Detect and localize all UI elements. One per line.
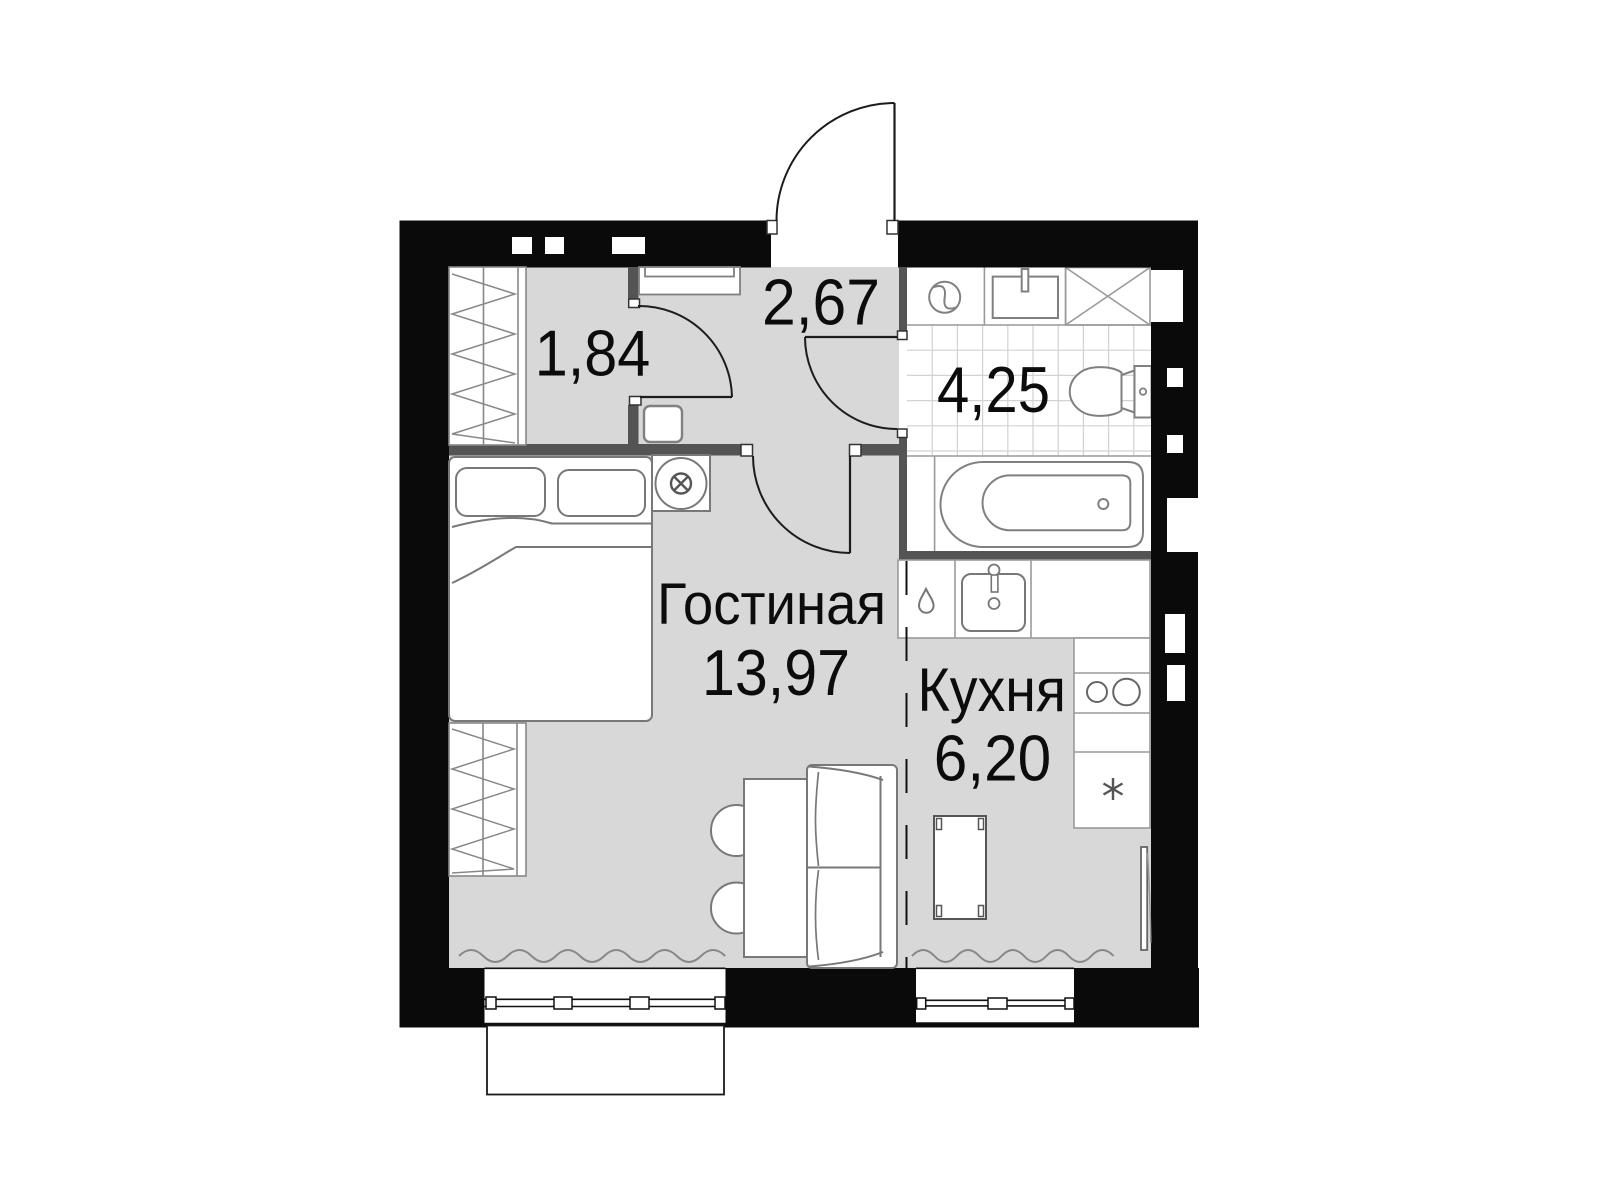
svg-text:Кухня: Кухня (917, 656, 1066, 724)
svg-text:13,97: 13,97 (702, 636, 850, 709)
svg-text:2,67: 2,67 (762, 266, 880, 339)
svg-text:Гостиная: Гостиная (657, 572, 886, 637)
svg-text:4,25: 4,25 (937, 353, 1050, 426)
svg-text:1,84: 1,84 (535, 317, 651, 390)
svg-text:6,20: 6,20 (934, 722, 1052, 795)
